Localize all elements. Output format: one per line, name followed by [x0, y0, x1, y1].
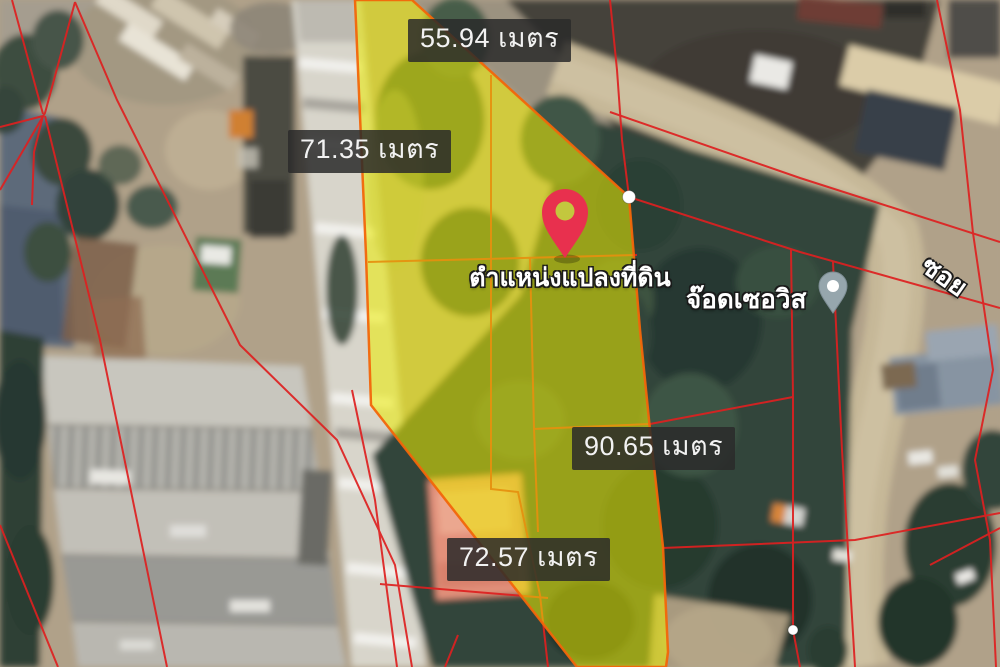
place-name-label[interactable]: จ๊อดเซอวิส [686, 279, 806, 320]
map-canvas[interactable]: 55.94 เมตร 71.35 เมตร 90.65 เมตร 72.57 เ… [0, 0, 1000, 667]
measurement-label-left: 71.35 เมตร [288, 130, 451, 173]
measurement-label-top: 55.94 เมตร [408, 19, 571, 62]
measurement-label-right: 90.65 เมตร [572, 427, 735, 470]
parcel-marker-caption: ตำแหน่งแปลงที่ดิน [452, 258, 688, 298]
parcel-vertex-dot [623, 191, 636, 204]
boundary-vertex-dot [788, 625, 798, 635]
measurement-label-bottom: 72.57 เมตร [447, 538, 610, 581]
